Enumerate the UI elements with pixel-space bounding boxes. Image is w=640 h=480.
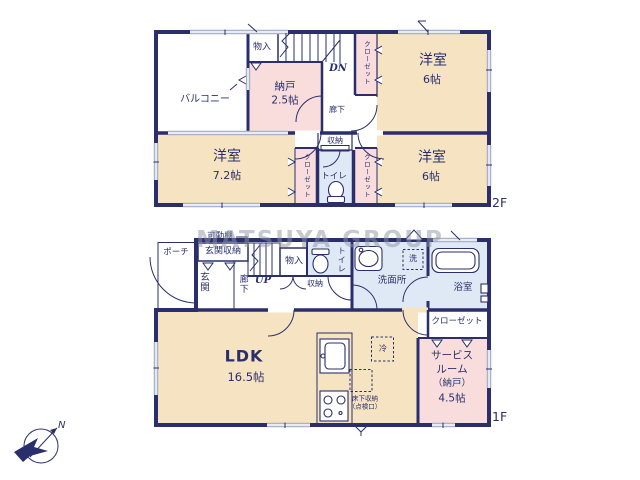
f1-bath-label: 浴室 — [453, 283, 472, 293]
floorplan-canvas: N バルコニー 物入 DN クローゼット 洋室 6帖 納戸 2.5帖 廊下 洋室… — [0, 0, 640, 480]
f1-senmenjo-label: 洗面所 — [378, 276, 407, 286]
f2-bedroom-tr-label: 洋室 — [419, 54, 447, 69]
f1-laundry-label: 洗 — [409, 255, 417, 263]
f1-rouka-label: 廊下 — [237, 274, 246, 294]
f2-nando-size: 2.5帖 — [271, 95, 298, 106]
f1-ldk-label: LDK — [225, 349, 264, 366]
f2-floor-label: 2F — [492, 196, 507, 209]
compass-icon: N — [14, 420, 66, 463]
watermark-text: MATSUYA GROUP — [196, 227, 444, 253]
f1-ldk-size: 16.5帖 — [227, 371, 264, 383]
f2-stairs-dn-label: DN — [329, 64, 347, 75]
f2-toilet-icon — [328, 182, 345, 203]
f2-bedroom-br-size: 6帖 — [422, 171, 440, 183]
f1-kitchen-sink-icon — [320, 339, 349, 373]
f1-closet-label: クローゼット — [431, 318, 482, 327]
f2-bedroom-br-label: 洋室 — [418, 151, 446, 166]
f2-closet-tr-label: クローゼット — [363, 41, 370, 86]
f2-bedroom-tr-size: 6帖 — [423, 74, 441, 86]
f1-fridge-label: 冷 — [379, 345, 387, 353]
f2-nando-label: 納戸 — [275, 81, 296, 92]
f1-service-label2: ルーム — [436, 364, 467, 375]
f2-closet-bl-label: クローゼット — [303, 154, 310, 199]
f1-monoire-label: 物入 — [285, 257, 303, 266]
f1-service-label1: サービス — [431, 350, 473, 361]
f1-yukashita-label1: 床下収納 — [352, 396, 378, 403]
f2-balcony-label: バルコニー — [180, 95, 230, 106]
f2-bedroom-br — [377, 133, 489, 205]
f1-genkan-label: 玄関 — [198, 272, 208, 293]
f1-porch-label: ポーチ — [163, 249, 189, 258]
f2-rouka-label: 廊下 — [329, 106, 345, 114]
f1-yukashita-label2: （点検口） — [349, 404, 382, 411]
f2-bedroom-left-label: 洋室 — [213, 150, 241, 165]
f2-shuunou-label: 収納 — [327, 137, 343, 145]
f1-stove-icon — [320, 391, 348, 421]
f1-floor-label: 1F — [492, 410, 507, 423]
f2-toilet-label: トイレ — [321, 173, 347, 182]
compass-north-label: N — [58, 420, 66, 431]
f1-shuunou-label: 収納 — [307, 280, 323, 288]
f1-service-label3: （納戸） — [433, 379, 471, 389]
f2-closet-br-label: クローゼット — [363, 154, 370, 199]
f1-stairs-up-label: UP — [255, 276, 271, 287]
f2-bedroom-left-size: 7.2帖 — [213, 170, 242, 182]
f1-service-label4: 4.5帖 — [438, 393, 465, 404]
f2-monoire-label: 物入 — [253, 43, 271, 52]
